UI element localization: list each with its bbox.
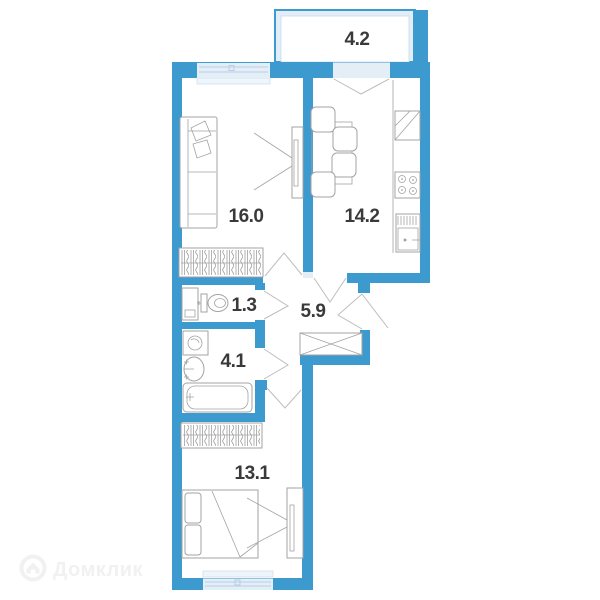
balcony-door-swing — [334, 79, 389, 94]
sofa — [180, 117, 217, 228]
tv-stand-living — [254, 127, 303, 198]
room-label-toilet: 1.3 — [232, 295, 257, 316]
wall-bedroom-door-stub — [255, 380, 267, 390]
entrance-door-swing — [338, 294, 388, 329]
domclick-watermark: Домклик — [22, 557, 144, 582]
toilet-door-swing — [264, 291, 288, 319]
wall-bedroom-right — [302, 357, 313, 590]
room-hallway: 5.9 — [300, 301, 362, 355]
wall-hall-top-right — [347, 273, 430, 283]
toilet-cabinet — [182, 288, 198, 320]
wall-entry-stub — [358, 283, 370, 293]
floor-plan: 4.2 — [0, 0, 600, 600]
washing-machine — [183, 331, 208, 355]
wall-toilet-bath-divider — [182, 322, 255, 329]
bathtub — [183, 383, 252, 412]
bedroom-door-swing — [267, 388, 301, 408]
stove — [395, 172, 420, 198]
wall-balcony-column — [413, 10, 428, 62]
wall-living-kitchen-divider — [303, 62, 313, 272]
watermark-brand: Домклик — [53, 559, 143, 581]
bathroom-sink — [184, 357, 204, 381]
room-kitchen: 14.2 — [311, 80, 420, 253]
kitchen-cabinet — [395, 111, 420, 140]
bedroom-window-sill — [203, 571, 273, 577]
wall-bath-bottom — [172, 413, 265, 422]
room-label-bedroom: 13.1 — [235, 463, 271, 484]
room-label-balcony: 4.2 — [345, 29, 370, 50]
room-label-kitchen: 14.2 — [345, 206, 380, 227]
hall-wardrobe — [300, 333, 362, 355]
kitchen-sink — [396, 214, 420, 252]
room-label-hallway: 5.9 — [301, 301, 326, 322]
kitchen-door-swing — [314, 278, 346, 302]
room-bedroom: 13.1 — [181, 423, 303, 558]
floor-plan-page: 4.2 — [0, 0, 600, 600]
balcony-door — [333, 63, 390, 79]
bed — [182, 490, 258, 558]
room-bathroom: 4.1 — [183, 331, 252, 412]
room-label-living: 16.0 — [229, 206, 264, 227]
wall-toilet-right-a — [255, 283, 265, 290]
room-label-bathroom: 4.1 — [221, 351, 247, 372]
room-toilet: 1.3 — [182, 288, 256, 320]
wall-toilet-right-b — [255, 320, 265, 348]
wall-divider-cap — [303, 272, 313, 278]
wardrobe-living — [179, 248, 263, 277]
wall-right-kitchen — [420, 62, 430, 283]
living-window-sill — [197, 78, 270, 84]
living-door-swing — [265, 253, 302, 276]
domclick-house-icon — [22, 557, 45, 580]
dining-chairs — [311, 107, 357, 197]
wardrobe-bedroom — [181, 423, 262, 448]
room-balcony: 4.2 — [275, 10, 415, 62]
toilet — [197, 294, 228, 312]
bathroom-door-swing — [264, 349, 288, 379]
wall-living-bottom — [172, 277, 263, 285]
